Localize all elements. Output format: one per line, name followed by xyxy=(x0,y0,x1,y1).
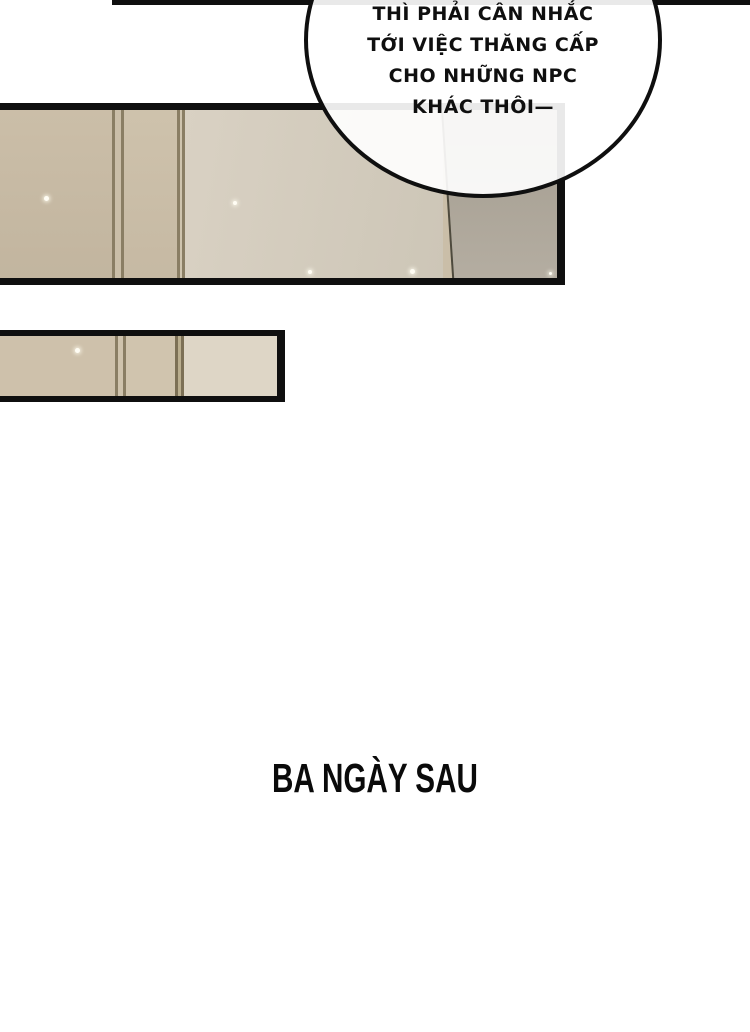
speech-line: THÌ PHẢI CÂN NHẮC xyxy=(298,0,668,30)
wall-section-tan xyxy=(124,110,177,278)
speech-bubble-text: THÌ PHẢI CÂN NHẮC TỚI VIỆC THĂNG CẤP CHO… xyxy=(298,0,668,123)
light-sparkle xyxy=(410,269,415,274)
light-sparkle xyxy=(549,272,552,275)
comic-page: THÌ PHẢI CÂN NHẮC TỚI VIỆC THĂNG CẤP CHO… xyxy=(0,0,750,1032)
time-skip-caption: BA NGÀY SAU xyxy=(272,756,478,802)
speech-line: TỚI VIỆC THĂNG CẤP xyxy=(298,30,668,61)
light-sparkle xyxy=(75,348,80,353)
wall-section-tan xyxy=(0,110,112,278)
comic-panel-strip xyxy=(0,330,285,402)
light-sparkle xyxy=(233,201,237,205)
speech-line: KHÁC THÔI— xyxy=(298,92,668,123)
caption-container: BA NGÀY SAU xyxy=(0,758,750,801)
wall-section-light xyxy=(184,336,277,396)
light-sparkle xyxy=(308,270,312,274)
light-sparkle xyxy=(44,196,49,201)
wall-section-tan xyxy=(0,336,115,396)
speech-line: CHO NHỮNG NPC xyxy=(298,61,668,92)
wall-section-tan xyxy=(126,336,175,396)
panel-artwork-ceiling-strip xyxy=(0,336,277,396)
